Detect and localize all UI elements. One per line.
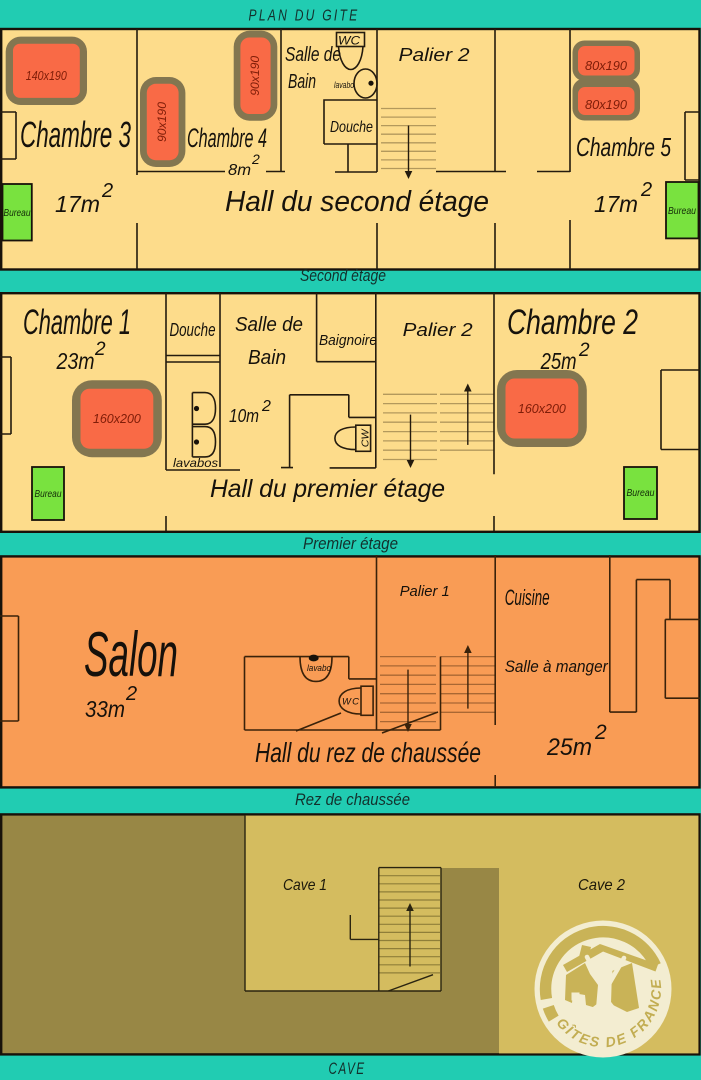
svg-text:Bureau: Bureau xyxy=(627,487,655,499)
svg-text:Baignoire: Baignoire xyxy=(319,332,377,349)
svg-text:Salle de: Salle de xyxy=(285,44,341,66)
svg-text:Bureau: Bureau xyxy=(4,207,31,219)
svg-text:Bureau: Bureau xyxy=(668,205,696,217)
svg-text:Douche: Douche xyxy=(330,119,373,136)
svg-text:2: 2 xyxy=(101,180,113,202)
svg-text:Palier 1: Palier 1 xyxy=(400,583,450,600)
svg-text:Bureau: Bureau xyxy=(35,488,62,500)
svg-text:2: 2 xyxy=(578,340,590,361)
svg-text:80x190: 80x190 xyxy=(585,59,627,73)
svg-text:25m: 25m xyxy=(540,348,577,374)
svg-text:Chambre 2: Chambre 2 xyxy=(507,303,638,342)
svg-text:WC: WC xyxy=(342,697,359,708)
svg-text:33m: 33m xyxy=(85,696,125,722)
svg-text:2: 2 xyxy=(251,151,260,167)
svg-text:Bain: Bain xyxy=(288,71,316,93)
svg-text:80x190: 80x190 xyxy=(585,98,627,112)
svg-text:2: 2 xyxy=(125,683,137,705)
svg-text:140x190: 140x190 xyxy=(26,68,68,83)
svg-text:Premier étage: Premier étage xyxy=(303,534,398,553)
svg-text:Bain: Bain xyxy=(248,347,286,369)
svg-text:2: 2 xyxy=(640,179,652,201)
svg-text:160x200: 160x200 xyxy=(518,401,567,416)
svg-text:2: 2 xyxy=(94,339,106,360)
svg-text:160x200: 160x200 xyxy=(93,411,142,426)
svg-text:Chambre 4: Chambre 4 xyxy=(187,123,267,153)
svg-text:10m: 10m xyxy=(229,406,259,426)
svg-text:Cave 1: Cave 1 xyxy=(283,877,327,894)
svg-text:90x190: 90x190 xyxy=(155,102,169,142)
svg-text:Hall du premier étage: Hall du premier étage xyxy=(210,475,445,503)
svg-text:8m: 8m xyxy=(228,162,251,179)
svg-text:Second étage: Second étage xyxy=(300,266,386,285)
svg-text:lavabos: lavabos xyxy=(173,456,218,470)
svg-text:Salle à manger: Salle à manger xyxy=(505,657,609,676)
svg-text:Palier 2: Palier 2 xyxy=(403,320,473,340)
svg-text:Salon: Salon xyxy=(84,620,178,690)
svg-text:PLAN DU GITE: PLAN DU GITE xyxy=(249,8,360,25)
svg-text:Cave 2: Cave 2 xyxy=(578,877,625,894)
svg-text:90x190: 90x190 xyxy=(248,55,262,95)
svg-text:WC: WC xyxy=(338,34,360,48)
svg-text:Douche: Douche xyxy=(170,320,216,340)
svg-text:Hall du second étage: Hall du second étage xyxy=(225,186,489,218)
svg-text:Salle de: Salle de xyxy=(235,314,303,336)
svg-text:Chambre 1: Chambre 1 xyxy=(23,303,131,342)
svg-text:CAVE: CAVE xyxy=(329,1059,366,1078)
svg-text:Chambre 5: Chambre 5 xyxy=(576,132,671,162)
svg-text:Hall du rez de chaussée: Hall du rez de chaussée xyxy=(255,737,481,768)
svg-text:2: 2 xyxy=(261,398,271,415)
svg-text:Palier 2: Palier 2 xyxy=(399,45,470,65)
svg-text:CW: CW xyxy=(361,428,372,448)
svg-text:17m: 17m xyxy=(594,191,638,217)
svg-text:17m: 17m xyxy=(55,191,100,217)
svg-text:23m: 23m xyxy=(56,348,95,374)
svg-text:Cuisine: Cuisine xyxy=(505,585,550,610)
svg-text:2: 2 xyxy=(594,721,607,744)
svg-text:Rez de chaussée: Rez de chaussée xyxy=(295,790,410,809)
svg-text:25m: 25m xyxy=(546,734,592,761)
svg-text:lavabo: lavabo xyxy=(334,80,354,90)
svg-text:Chambre 3: Chambre 3 xyxy=(20,114,131,155)
svg-text:lavabo: lavabo xyxy=(307,663,331,674)
